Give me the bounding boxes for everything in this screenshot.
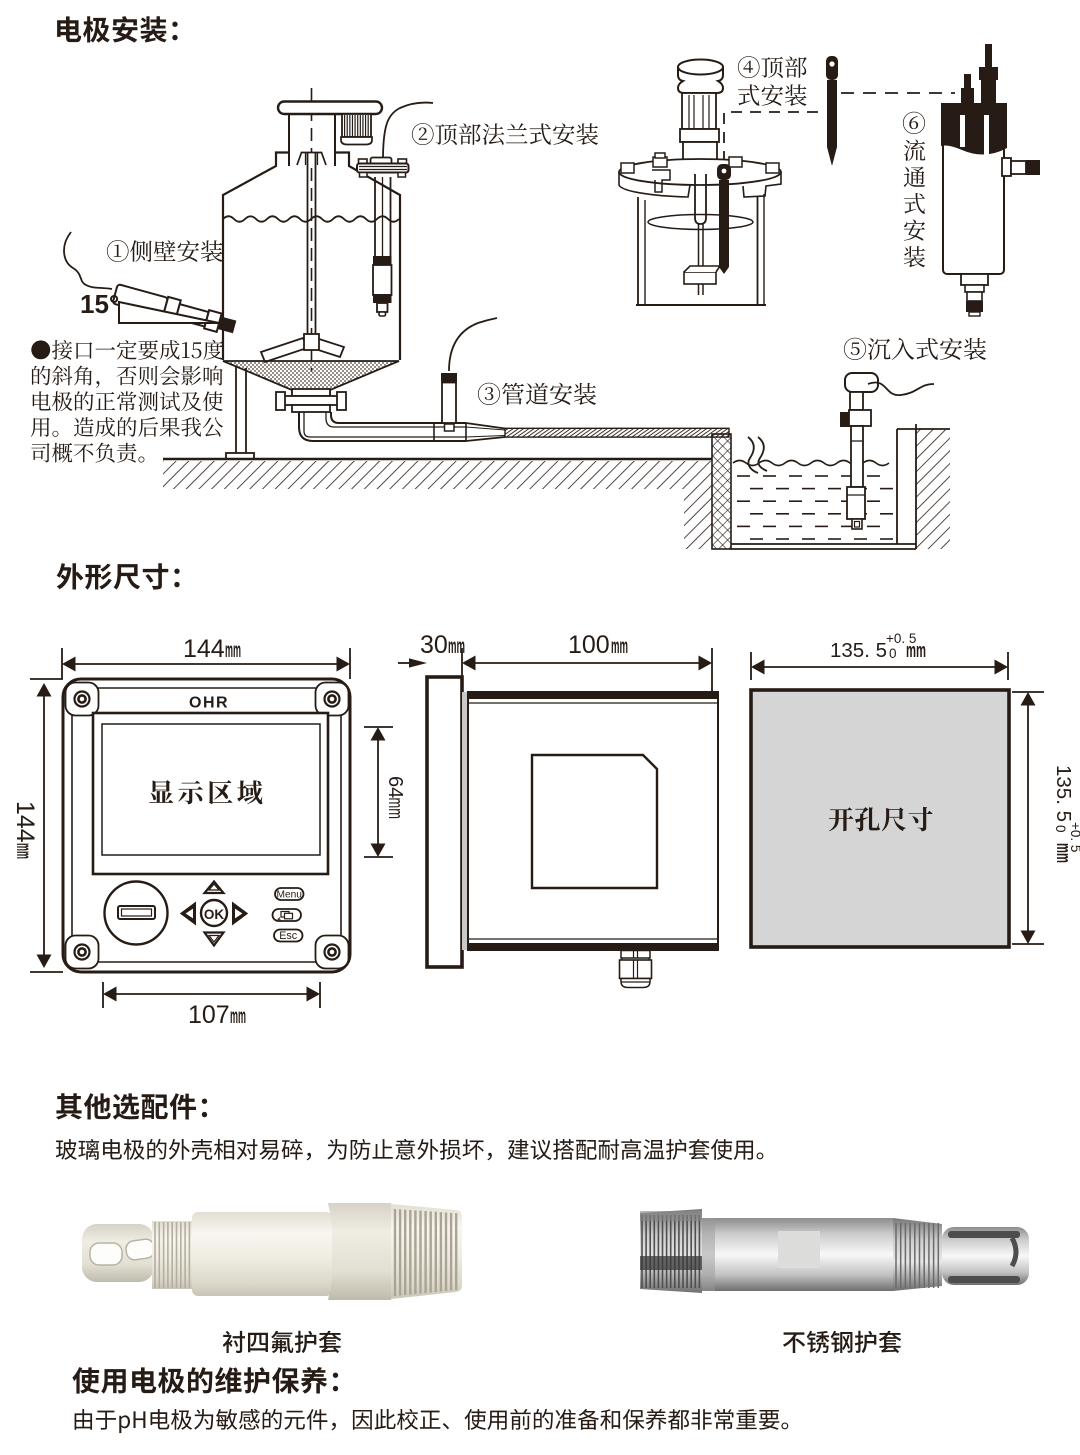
svg-text:144: 144 bbox=[11, 801, 39, 843]
svg-text:Esc: Esc bbox=[279, 930, 298, 942]
svg-text:135. 5: 135. 5 bbox=[1052, 765, 1075, 822]
svg-text:OHR: OHR bbox=[189, 695, 229, 712]
svg-text:0: 0 bbox=[1053, 825, 1068, 833]
svg-text:mm: mm bbox=[906, 640, 926, 662]
svg-text:64: 64 bbox=[384, 776, 406, 798]
svg-text:144: 144 bbox=[183, 635, 225, 663]
svg-text:0: 0 bbox=[889, 646, 897, 661]
svg-text:135. 5: 135. 5 bbox=[830, 639, 887, 662]
svg-text:OK: OK bbox=[204, 907, 225, 922]
svg-text:mm: mm bbox=[230, 1005, 246, 1028]
svg-text:mm: mm bbox=[611, 635, 628, 658]
svg-text:15°: 15° bbox=[80, 289, 119, 319]
svg-text:mm: mm bbox=[384, 798, 406, 820]
svg-text:mm: mm bbox=[1052, 843, 1074, 863]
svg-text:mm: mm bbox=[225, 639, 241, 662]
svg-text:107: 107 bbox=[188, 1001, 230, 1029]
svg-text:mm: mm bbox=[12, 843, 35, 859]
svg-text:30: 30 bbox=[420, 631, 448, 659]
svg-text:Menu: Menu bbox=[276, 890, 301, 901]
svg-text:100: 100 bbox=[568, 631, 610, 659]
